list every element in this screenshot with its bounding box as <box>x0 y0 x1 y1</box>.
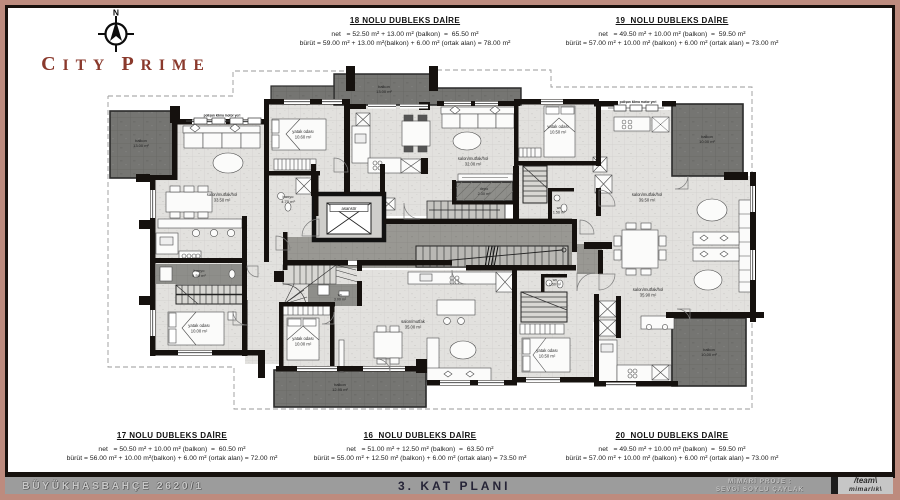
svg-text:wc: wc <box>338 293 343 297</box>
svg-text:4.50 m²: 4.50 m² <box>192 273 206 278</box>
svg-text:10.50 m²: 10.50 m² <box>539 354 556 359</box>
svg-text:salon/mutfak/hol: salon/mutfak/hol <box>633 287 664 292</box>
svg-text:10.60 m²: 10.60 m² <box>295 135 312 140</box>
svg-text:13.00 m²: 13.00 m² <box>376 89 392 94</box>
svg-text:33.50 m²: 33.50 m² <box>214 198 231 203</box>
svg-text:4.70 m²: 4.70 m² <box>281 199 295 204</box>
svg-text:salon/mutfak: salon/mutfak <box>401 319 426 324</box>
svg-text:10.00 m²: 10.00 m² <box>699 139 715 144</box>
svg-text:salon/mutfak/hol: salon/mutfak/hol <box>458 156 489 161</box>
svg-text:yatak odası: yatak odası <box>188 323 209 328</box>
svg-text:2.30 m²: 2.30 m² <box>478 192 492 196</box>
svg-text:32.00 m²: 32.00 m² <box>465 162 482 167</box>
svg-text:35.00 m²: 35.00 m² <box>405 325 422 330</box>
svg-text:12.95 m²: 12.95 m² <box>332 387 348 392</box>
svg-text:1.50 m²: 1.50 m² <box>549 283 562 287</box>
svg-text:13.00 m²: 13.00 m² <box>133 143 149 148</box>
svg-text:10.00 m²: 10.00 m² <box>295 342 312 347</box>
svg-text:3.00 m²: 3.00 m² <box>334 298 347 302</box>
svg-text:salon/mutfak/hol: salon/mutfak/hol <box>207 192 238 197</box>
svg-text:depo: depo <box>480 187 488 191</box>
svg-text:yatak odası: yatak odası <box>547 124 568 129</box>
svg-text:yatak odası: yatak odası <box>292 336 313 341</box>
svg-text:10.00 m²: 10.00 m² <box>701 352 717 357</box>
svg-text:10.50 m²: 10.50 m² <box>550 130 567 135</box>
svg-text:wc: wc <box>553 278 558 282</box>
svg-text:yatak odası: yatak odası <box>536 348 557 353</box>
svg-text:polişan klima motor yeri: polişan klima motor yeri <box>204 114 241 118</box>
svg-text:10.00 m²: 10.00 m² <box>191 329 208 334</box>
svg-text:35.90 m²: 35.90 m² <box>640 293 657 298</box>
svg-text:salon/mutfak/hol: salon/mutfak/hol <box>632 192 663 197</box>
svg-text:39.50 m²: 39.50 m² <box>639 198 656 203</box>
svg-text:wc: wc <box>557 206 562 210</box>
svg-text:asansör: asansör <box>342 206 358 211</box>
svg-text:polişan klima motor yeri: polişan klima motor yeri <box>620 100 657 104</box>
svg-text:yatak odası: yatak odası <box>292 129 313 134</box>
svg-text:1.50 m²: 1.50 m² <box>553 211 566 215</box>
svg-text:N: N <box>113 8 119 18</box>
